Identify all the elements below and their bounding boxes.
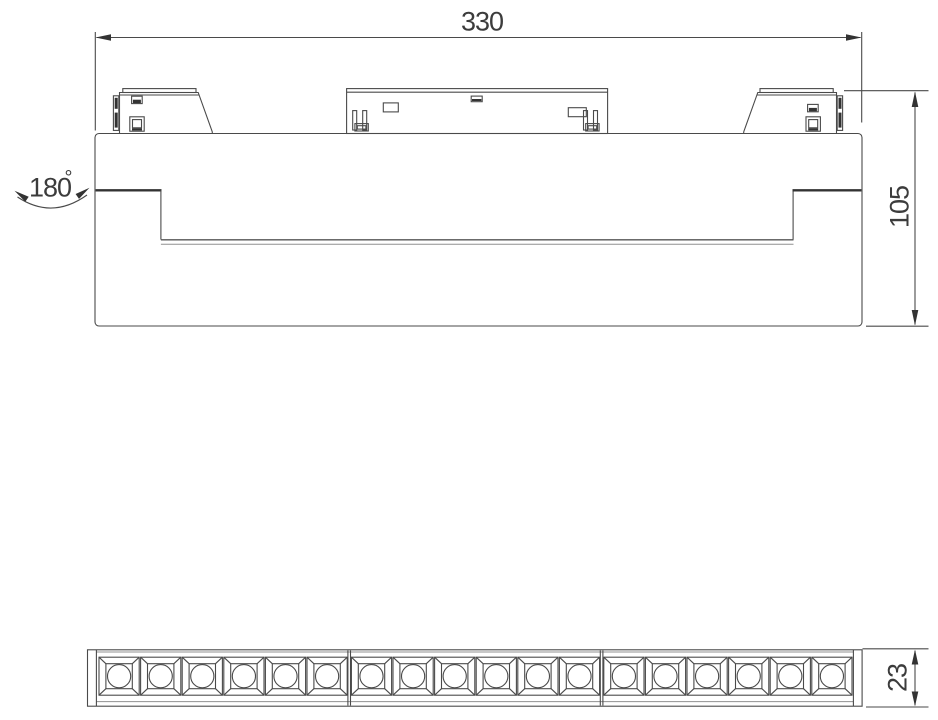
led-cell-inner [777, 664, 803, 689]
arrowhead-up-icon [912, 650, 919, 665]
led-cell-bevel [141, 689, 148, 696]
led-cell [812, 657, 852, 695]
led-cell-inner [314, 664, 340, 689]
led-cell-inner [358, 664, 384, 689]
led-cell-bevel [99, 689, 106, 696]
led-cell-bevel [845, 689, 852, 696]
led-cell-bevel [351, 657, 358, 664]
led-lens-circle [149, 665, 172, 688]
led-cell-inner [566, 664, 592, 689]
clip-top-lip [760, 89, 833, 93]
led-cell-bevel [468, 689, 475, 696]
led-cell-bevel [559, 689, 566, 696]
led-cell-bevel [804, 657, 811, 664]
led-cell-bevel [687, 689, 694, 696]
led-cell-bevel [762, 657, 769, 664]
led-lens-circle [232, 665, 255, 688]
led-cell-bevel [679, 657, 686, 664]
led-cell-bevel [216, 689, 223, 696]
led-cell-bevel [476, 689, 483, 696]
led-cell-bevel [182, 657, 189, 664]
led-cell-bevel [679, 689, 686, 696]
led-cell [265, 657, 305, 695]
led-cell-bevel [770, 657, 777, 664]
led-cell-bevel [393, 657, 400, 664]
led-cell-bevel [645, 657, 652, 664]
led-lens-circle [485, 665, 508, 688]
mount-clip-right [744, 89, 843, 134]
clip-contact-bar [115, 113, 118, 128]
arc-arrowhead-right-icon [76, 188, 90, 199]
led-cell-bevel [426, 689, 433, 696]
clip-contact-bar [115, 98, 118, 109]
clip-hole-upper-slot [809, 108, 817, 111]
drawing-svg: 330 [0, 0, 938, 720]
led-cell-bevel [340, 657, 347, 664]
dimension-strip-value: 23 [883, 664, 913, 692]
led-cell-bevel [299, 689, 306, 696]
led-cell [687, 657, 727, 695]
led-lens-circle [274, 665, 297, 688]
led-cell [729, 657, 769, 695]
led-lens-circle [108, 665, 131, 688]
led-cell-bevel [224, 657, 231, 664]
clip-hole-top-slot [472, 99, 481, 101]
led-cell [393, 657, 433, 695]
led-cell-bevel [435, 689, 442, 696]
led-array [99, 651, 852, 706]
led-cell [141, 657, 181, 695]
led-lens-circle [526, 665, 549, 688]
led-cell [604, 657, 644, 695]
led-cell-bevel [551, 657, 558, 664]
clip-hole-upper-slot [133, 100, 141, 103]
led-cell-bevel [257, 689, 264, 696]
led-cell-inner [694, 664, 720, 689]
led-cell-bevel [812, 657, 819, 664]
led-cell-bevel [637, 689, 644, 696]
led-cell-inner [231, 664, 257, 689]
led-cell-bevel [174, 689, 181, 696]
led-cell-bevel [593, 689, 600, 696]
led-cell-bevel [720, 657, 727, 664]
led-cell [99, 657, 139, 695]
led-cell-inner [442, 664, 468, 689]
led-cell-inner [272, 664, 298, 689]
arrowhead-down-icon [912, 692, 919, 707]
side-view [95, 89, 862, 326]
led-cell-bevel [299, 657, 306, 664]
led-cell-inner [189, 664, 215, 689]
led-cell-bevel [385, 689, 392, 696]
dimension-width: 330 [95, 7, 861, 131]
clip-outline [744, 93, 837, 134]
led-cell-bevel [393, 689, 400, 696]
led-lens-circle [820, 665, 843, 688]
led-cell-bevel [604, 657, 611, 664]
led-cell-bevel [257, 657, 264, 664]
led-cell-bevel [729, 657, 736, 664]
led-cell [770, 657, 810, 695]
led-lens-circle [316, 665, 339, 688]
clip-hole-lower-slot [132, 128, 142, 130]
arrowhead-right-icon [846, 34, 862, 40]
degree-symbol: ° [65, 167, 73, 189]
clip-hole-lower-inner [133, 120, 142, 128]
dimension-height: 105 [844, 91, 929, 327]
led-cell-inner [525, 664, 551, 689]
led-lens-circle [612, 665, 635, 688]
spring-contact-left [353, 111, 369, 131]
led-cell-bevel [224, 689, 231, 696]
led-cell-inner [400, 664, 426, 689]
led-cell-bevel [265, 689, 272, 696]
led-cell-inner [106, 664, 132, 689]
arrowhead-up-icon [912, 92, 919, 108]
led-cell-bevel [845, 657, 852, 664]
spring-base-inner [588, 126, 597, 129]
led-cell-inner [148, 664, 174, 689]
clip-contact-bar [839, 113, 842, 128]
led-lens-circle [654, 665, 677, 688]
led-cell [307, 657, 347, 695]
led-cell [559, 657, 599, 695]
led-cell-inner [611, 664, 637, 689]
led-cell-bevel [265, 657, 272, 664]
led-cell-bevel [132, 689, 139, 696]
led-lens-circle [696, 665, 719, 688]
led-cell-bevel [99, 657, 106, 664]
clip-hole-left [383, 103, 398, 112]
spring-base-inner [357, 126, 366, 129]
led-cell-bevel [812, 689, 819, 696]
led-cell-bevel [593, 657, 600, 664]
led-cell-bevel [518, 657, 525, 664]
led-lens-circle [568, 665, 591, 688]
bottom-view [88, 650, 863, 706]
led-cell [224, 657, 264, 695]
led-cell-bevel [174, 657, 181, 664]
clip-contact-bar [839, 98, 842, 109]
led-cell-bevel [518, 689, 525, 696]
mount-clip-center [347, 89, 608, 134]
led-cell-bevel [687, 657, 694, 664]
led-cell-inner [652, 664, 678, 689]
led-lens-circle [779, 665, 802, 688]
led-cell-bevel [132, 657, 139, 664]
led-cell-bevel [385, 657, 392, 664]
led-cell-bevel [426, 657, 433, 664]
led-cell-bevel [604, 689, 611, 696]
led-cell-bevel [510, 657, 517, 664]
led-cell [182, 657, 222, 695]
led-cell-bevel [307, 689, 314, 696]
led-cell-bevel [729, 689, 736, 696]
led-cell-bevel [307, 657, 314, 664]
led-cell-bevel [435, 657, 442, 664]
led-cell [645, 657, 685, 695]
led-cell-bevel [141, 657, 148, 664]
mount-clip-left [113, 89, 212, 134]
led-cell-bevel [720, 689, 727, 696]
led-lens-circle [443, 665, 466, 688]
led-lens-circle [737, 665, 760, 688]
led-cell-bevel [510, 689, 517, 696]
led-cell [435, 657, 475, 695]
arrowhead-left-icon [96, 34, 112, 40]
led-cell-bevel [476, 657, 483, 664]
clip-top-lip [123, 89, 196, 93]
clip-hole-lower-slot [808, 128, 818, 130]
led-cell [351, 657, 391, 695]
led-cell-inner [483, 664, 509, 689]
led-cell-bevel [551, 689, 558, 696]
led-cell [518, 657, 558, 695]
led-cell-bevel [559, 657, 566, 664]
led-cell-inner [819, 664, 845, 689]
led-cell-bevel [762, 689, 769, 696]
led-cell-bevel [351, 689, 358, 696]
fixture-body [95, 134, 862, 327]
dimension-height-value: 105 [885, 186, 915, 228]
led-cell-bevel [770, 689, 777, 696]
technical-drawing-canvas: 330 [0, 0, 938, 720]
arrowhead-down-icon [912, 310, 919, 326]
led-cell-inner [736, 664, 762, 689]
clip-hole-lower-inner [809, 120, 818, 128]
led-lens-circle [360, 665, 383, 688]
led-cell-bevel [645, 689, 652, 696]
led-cell-bevel [468, 657, 475, 664]
led-cell [476, 657, 516, 695]
led-cell-bevel [216, 657, 223, 664]
led-cell-bevel [340, 689, 347, 696]
led-cell-bevel [182, 689, 189, 696]
led-lens-circle [191, 665, 214, 688]
dimension-width-value: 330 [461, 7, 503, 37]
led-lens-circle [402, 665, 425, 688]
dimension-strip-height: 23 [863, 649, 929, 707]
rotation-annotation: 180 ° [15, 167, 90, 208]
led-cell-bevel [637, 657, 644, 664]
led-cell-bevel [804, 689, 811, 696]
